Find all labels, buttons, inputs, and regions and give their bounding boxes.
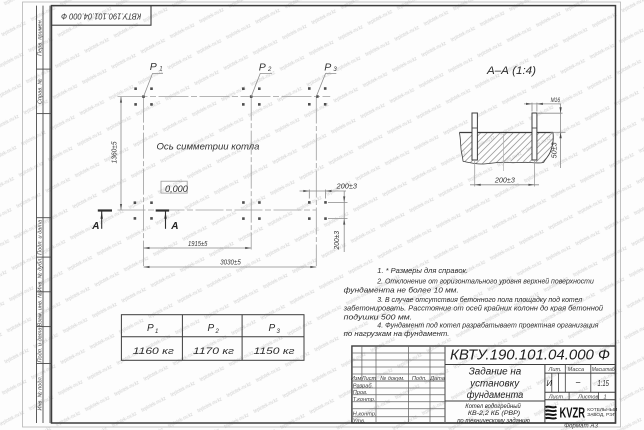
svg-text:Котел водогрейный: Котел водогрейный xyxy=(465,403,521,410)
svg-text:50±3: 50±3 xyxy=(552,142,559,158)
svg-text:Пров.: Пров. xyxy=(353,390,368,396)
svg-text:2: 2 xyxy=(215,329,220,335)
svg-text:200±3: 200±3 xyxy=(335,183,357,190)
svg-text:ЗАВОД, РЭП: ЗАВОД, РЭП xyxy=(587,412,616,418)
svg-text:Формат А3: Формат А3 xyxy=(564,423,598,430)
svg-text:3030±5: 3030±5 xyxy=(220,260,241,267)
svg-text:1:15: 1:15 xyxy=(597,379,609,388)
svg-text:3. В случае отсутствия бетонно: 3. В случае отсутствия бетонного пола пл… xyxy=(377,295,583,304)
svg-text:фундамента: фундамента xyxy=(467,390,524,401)
svg-text:Подп.: Подп. xyxy=(412,376,427,382)
svg-text:Перв. примен.: Перв. примен. xyxy=(38,19,44,56)
svg-text:Масштаб: Масштаб xyxy=(592,367,616,373)
svg-text:КВТУ.190.101.04.000 Ф: КВТУ.190.101.04.000 Ф xyxy=(61,11,141,20)
svg-text:Лист: Лист xyxy=(361,376,377,382)
svg-text:P: P xyxy=(324,62,331,74)
svg-text:Подп. и дата: Подп. и дата xyxy=(38,220,44,255)
svg-text:Т.контр.: Т.контр. xyxy=(353,397,376,403)
svg-text:0,000: 0,000 xyxy=(165,184,188,195)
svg-text:А: А xyxy=(91,221,99,232)
svg-text:Задание на: Задание на xyxy=(469,366,522,377)
svg-text:А–А (1:4): А–А (1:4) xyxy=(486,65,536,77)
svg-text:Подп. и дата: Подп. и дата xyxy=(38,327,44,362)
svg-text:200±3: 200±3 xyxy=(494,177,515,184)
svg-text:–: – xyxy=(575,378,581,387)
svg-text:Справ. №: Справ. № xyxy=(38,79,44,104)
svg-text:Масса: Масса xyxy=(568,367,585,373)
svg-text:2. Отклонение от горизонтально: 2. Отклонение от горизонтального уровня … xyxy=(376,276,593,285)
svg-text:200±3: 200±3 xyxy=(334,231,341,251)
svg-text:1150 кг: 1150 кг xyxy=(254,346,296,356)
svg-text:P: P xyxy=(269,323,276,334)
svg-text:1: 1 xyxy=(604,394,607,400)
svg-text:по нагрузкам на фундамент.: по нагрузкам на фундамент. xyxy=(344,329,450,338)
svg-text:по техническому заданию: по техническому заданию xyxy=(457,417,530,424)
svg-text:1: 1 xyxy=(155,329,158,335)
svg-text:Инв. № подл.: Инв. № подл. xyxy=(38,376,44,411)
svg-text:Листов: Листов xyxy=(577,394,598,400)
svg-text:Лит.: Лит. xyxy=(548,367,562,373)
svg-text:P: P xyxy=(259,62,266,74)
svg-text:Взам. инв. №: Взам. инв. № xyxy=(38,292,44,327)
svg-text:Н.контр.: Н.контр. xyxy=(353,412,377,418)
svg-text:1915±5: 1915±5 xyxy=(188,241,208,248)
svg-text:А: А xyxy=(170,221,178,232)
svg-text:забетонировать. Расстояние от: забетонировать. Расстояние от осей крайн… xyxy=(343,304,603,313)
svg-text:№ докум.: № докум. xyxy=(380,376,405,382)
svg-text:4. Фундамент под котел разраба: 4. Фундамент под котел разрабатывает про… xyxy=(377,321,598,330)
svg-text:P: P xyxy=(150,61,157,73)
svg-text:КВТУ.190.101.04.000 Ф: КВТУ.190.101.04.000 Ф xyxy=(450,348,610,364)
svg-text:установку: установку xyxy=(469,378,520,389)
svg-text:2: 2 xyxy=(267,67,272,73)
svg-text:Лист: Лист xyxy=(548,394,564,400)
svg-text:КВ-2,2 КБ (РВР): КВ-2,2 КБ (РВР) xyxy=(468,410,520,417)
svg-text:1: 1 xyxy=(159,66,162,72)
svg-text:P: P xyxy=(147,323,154,334)
svg-text:P: P xyxy=(208,323,215,334)
svg-text:Ось симметрии котла: Ось симметрии котла xyxy=(157,142,260,153)
svg-text:Дата: Дата xyxy=(429,376,445,382)
svg-text:Инв. № дубл.: Инв. № дубл. xyxy=(38,257,44,291)
svg-text:KVZR: KVZR xyxy=(560,405,586,421)
svg-text:1. * Размеры для справок.: 1. * Размеры для справок. xyxy=(377,266,468,275)
svg-text:Утв.: Утв. xyxy=(352,418,366,424)
svg-text:фундамента не более 10 мм.: фундамента не более 10 мм. xyxy=(344,286,459,295)
svg-text:1170 кг: 1170 кг xyxy=(193,346,235,356)
svg-text:1160 кг: 1160 кг xyxy=(133,346,175,356)
svg-text:1360±5: 1360±5 xyxy=(111,141,118,163)
svg-text:И: И xyxy=(546,379,552,388)
svg-text:М16: М16 xyxy=(551,97,561,104)
svg-text:Разраб.: Разраб. xyxy=(353,383,373,389)
